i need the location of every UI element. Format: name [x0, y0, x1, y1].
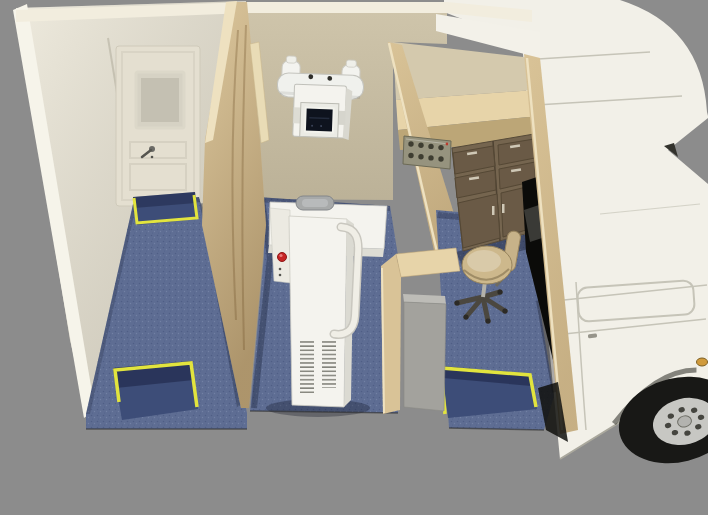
stool-seat-highlight: [467, 250, 501, 272]
emergency-stop-button: [278, 253, 287, 262]
cabinet-door-left: [458, 194, 500, 248]
unit-vent-right: [322, 340, 336, 388]
side-panel-dot-1: [279, 268, 282, 271]
entry-door: [116, 46, 200, 206]
control-panel-indicator: [446, 143, 449, 146]
unit-handle-inner: [302, 199, 328, 207]
mobile-xray-vehicle-render: [0, 0, 708, 515]
unit-vent-left: [300, 341, 314, 393]
collimator-blade-line: [309, 118, 329, 119]
emergency-button-highlight: [279, 254, 282, 257]
tube-mount-right-tip: [346, 60, 356, 67]
side-marker-light: [697, 358, 708, 366]
collimator-window: [305, 108, 334, 133]
control-panel: [403, 136, 451, 169]
door-window-glass: [141, 78, 179, 122]
unit-column: [289, 216, 347, 407]
housing-tab-right: [338, 111, 345, 125]
side-panel-dot-2: [279, 274, 282, 277]
tube-mount-left-tip: [286, 56, 296, 63]
door-keyhole: [151, 156, 154, 159]
control-room-step-well: [441, 366, 537, 418]
render-canvas: [0, 0, 708, 515]
equipment-box-front: [404, 302, 446, 411]
door-step-well: [133, 192, 198, 225]
housing-tab-left: [293, 107, 301, 123]
